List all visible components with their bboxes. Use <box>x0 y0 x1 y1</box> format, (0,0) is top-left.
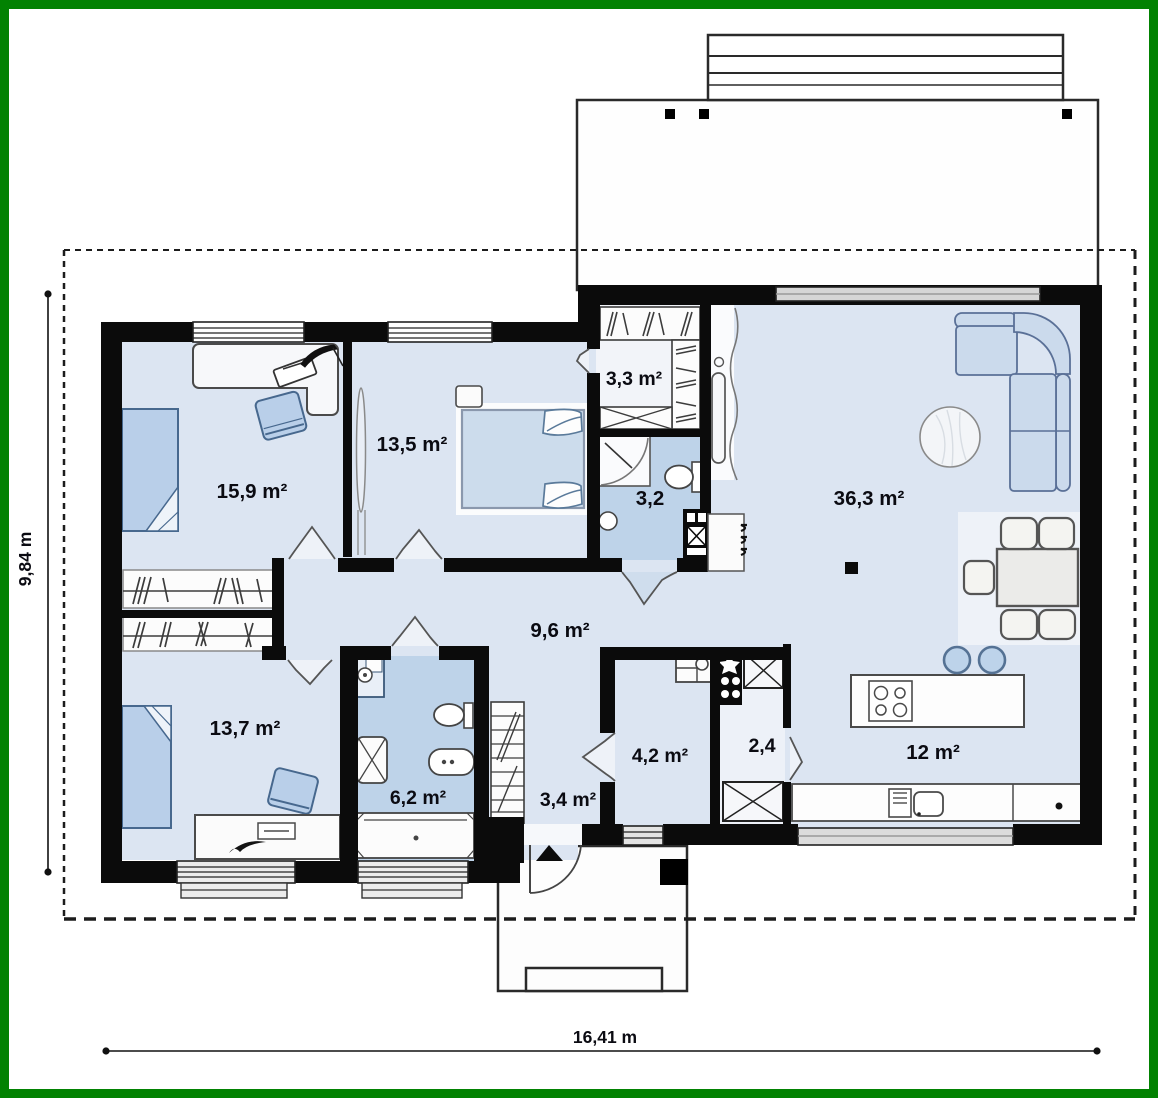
svg-text:16,41 m: 16,41 m <box>573 1027 637 1047</box>
svg-text:6,2 m²: 6,2 m² <box>390 787 447 809</box>
svg-text:4,2 m²: 4,2 m² <box>632 745 689 767</box>
svg-text:3,3 m²: 3,3 m² <box>606 368 663 390</box>
svg-text:15,9 m²: 15,9 m² <box>217 480 288 503</box>
svg-text:12 m²: 12 m² <box>906 741 960 764</box>
svg-text:13,5 m²: 13,5 m² <box>377 433 448 456</box>
svg-text:9,6 m²: 9,6 m² <box>530 619 589 642</box>
svg-text:3,4 m²: 3,4 m² <box>540 789 597 811</box>
svg-text:36,3 m²: 36,3 m² <box>834 487 905 510</box>
svg-text:2,4: 2,4 <box>748 735 775 757</box>
svg-text:9,84 m: 9,84 m <box>15 532 35 586</box>
svg-text:3,2: 3,2 <box>636 487 665 510</box>
svg-text:13,7 m²: 13,7 m² <box>210 717 281 740</box>
